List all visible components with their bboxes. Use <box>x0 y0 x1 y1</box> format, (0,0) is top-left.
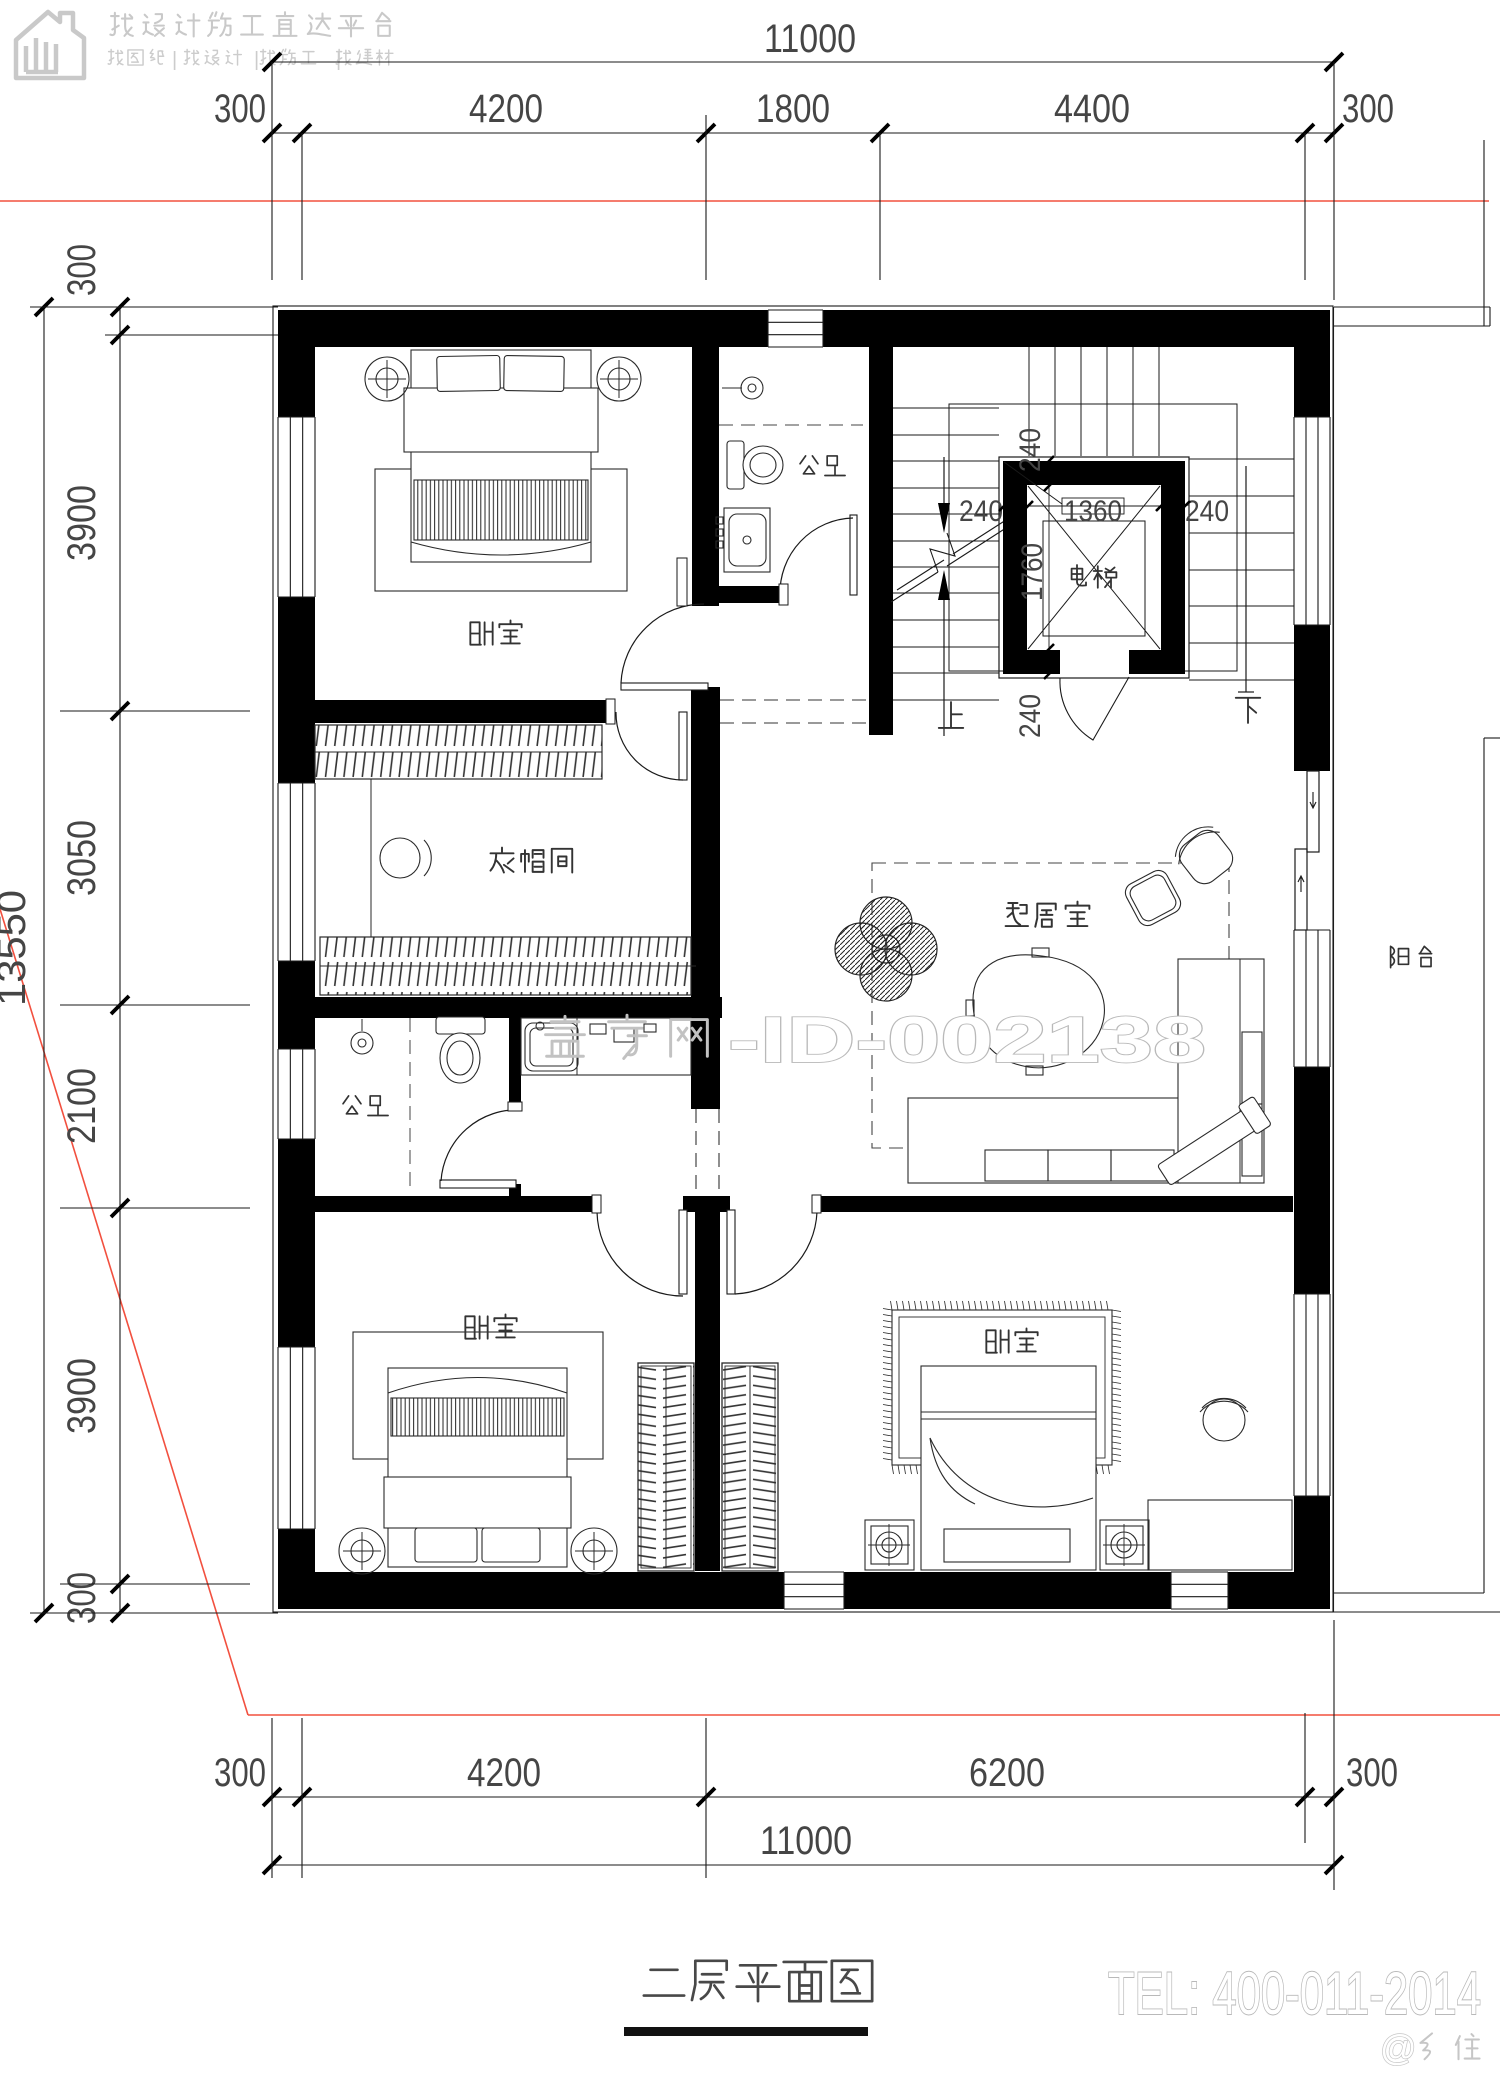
svg-text:3900: 3900 <box>60 1358 104 1434</box>
svg-text:240: 240 <box>959 495 1003 528</box>
svg-text:-ID-002138: -ID-002138 <box>728 1003 1206 1076</box>
svg-text:|: | <box>254 49 259 71</box>
svg-text:300: 300 <box>1346 1751 1398 1795</box>
svg-text:300: 300 <box>214 87 266 131</box>
svg-text:1800: 1800 <box>756 87 830 131</box>
svg-text:1360: 1360 <box>1064 495 1122 528</box>
svg-text:13550: 13550 <box>0 890 34 1006</box>
svg-text:11000: 11000 <box>764 17 856 61</box>
svg-text:300: 300 <box>60 1572 104 1624</box>
svg-text:4200: 4200 <box>467 1751 541 1795</box>
svg-text:1760: 1760 <box>1016 543 1049 601</box>
svg-text:300: 300 <box>214 1751 266 1795</box>
svg-text:|: | <box>172 49 177 71</box>
svg-text:240: 240 <box>1014 428 1047 472</box>
svg-text:6200: 6200 <box>969 1751 1045 1795</box>
svg-text:240: 240 <box>1185 495 1229 528</box>
svg-text:11000: 11000 <box>760 1819 852 1863</box>
svg-text:|: | <box>336 49 341 71</box>
svg-text:3050: 3050 <box>60 820 104 896</box>
svg-text:240: 240 <box>1014 694 1047 738</box>
svg-text:4200: 4200 <box>469 87 543 131</box>
svg-text:4400: 4400 <box>1054 87 1130 131</box>
svg-text:2100: 2100 <box>60 1068 104 1144</box>
svg-text:@: @ <box>1380 2027 1417 2068</box>
svg-text:300: 300 <box>1342 87 1394 131</box>
svg-text:TEL: 400-011-2014: TEL: 400-011-2014 <box>1108 1960 1481 2027</box>
svg-text:3900: 3900 <box>60 485 104 561</box>
svg-text:300: 300 <box>60 244 104 296</box>
